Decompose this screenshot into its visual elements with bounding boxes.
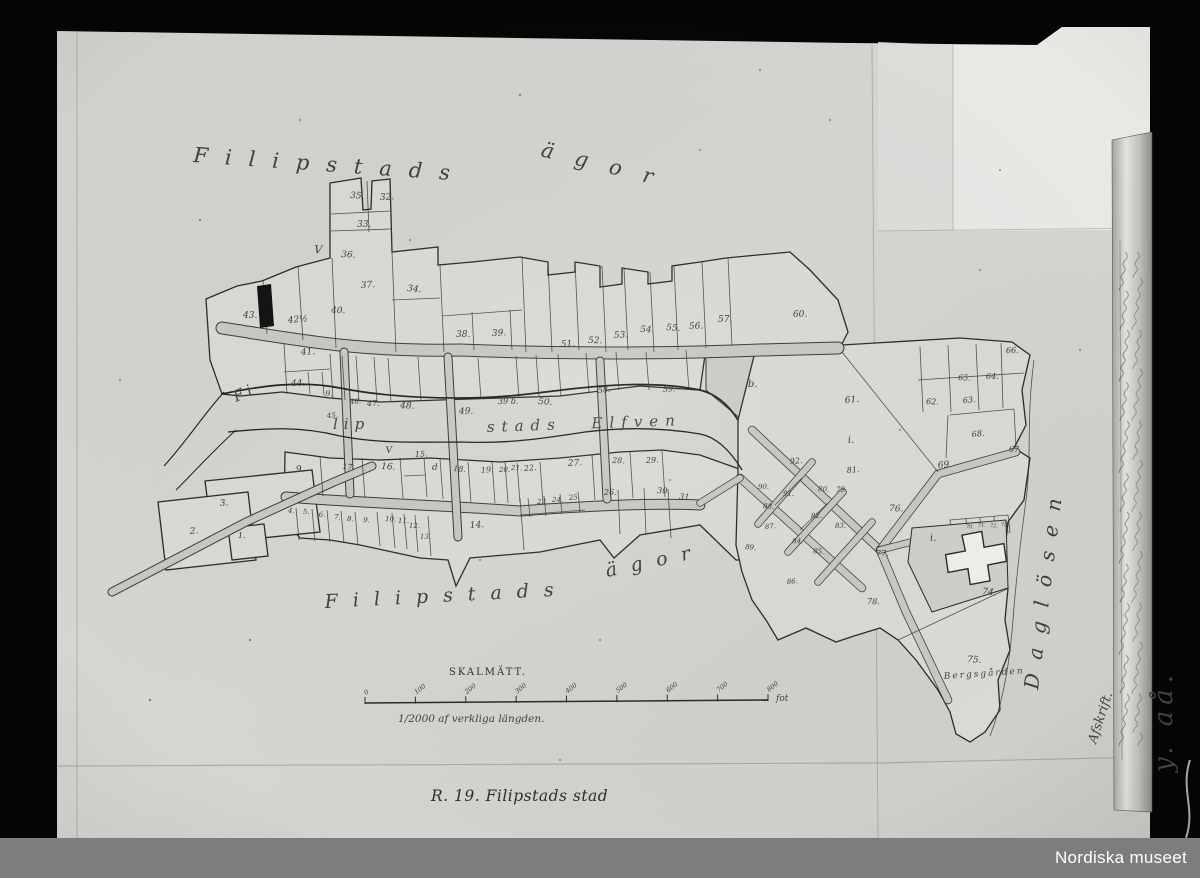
photo-vignette <box>0 0 1200 878</box>
map-photograph: Filipstads ägor Filipstads ägor Fi lip s… <box>0 0 1200 878</box>
archive-watermark-label: Nordiska museet <box>1055 848 1187 868</box>
archive-watermark-bar: Nordiska museet <box>0 838 1200 878</box>
photographed-map-plate: Filipstads ägor Filipstads ägor Fi lip s… <box>0 0 1200 878</box>
